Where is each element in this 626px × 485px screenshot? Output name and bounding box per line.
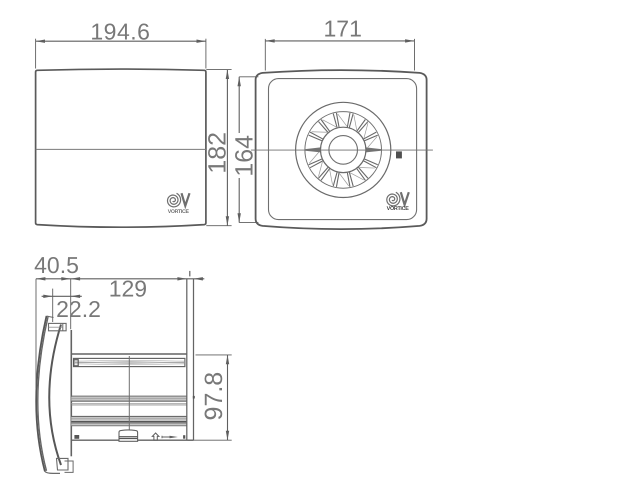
- svg-text:194.6: 194.6: [90, 18, 150, 44]
- svg-text:VORTICE: VORTICE: [387, 206, 410, 212]
- svg-text:182: 182: [203, 132, 231, 174]
- svg-text:40.5: 40.5: [34, 252, 79, 278]
- svg-text:22.2: 22.2: [56, 296, 101, 322]
- svg-text:97.8: 97.8: [200, 372, 228, 421]
- svg-text:171: 171: [324, 16, 362, 42]
- svg-text:VORTICE: VORTICE: [168, 209, 190, 215]
- svg-text:129: 129: [109, 276, 147, 302]
- svg-text:164: 164: [231, 135, 259, 177]
